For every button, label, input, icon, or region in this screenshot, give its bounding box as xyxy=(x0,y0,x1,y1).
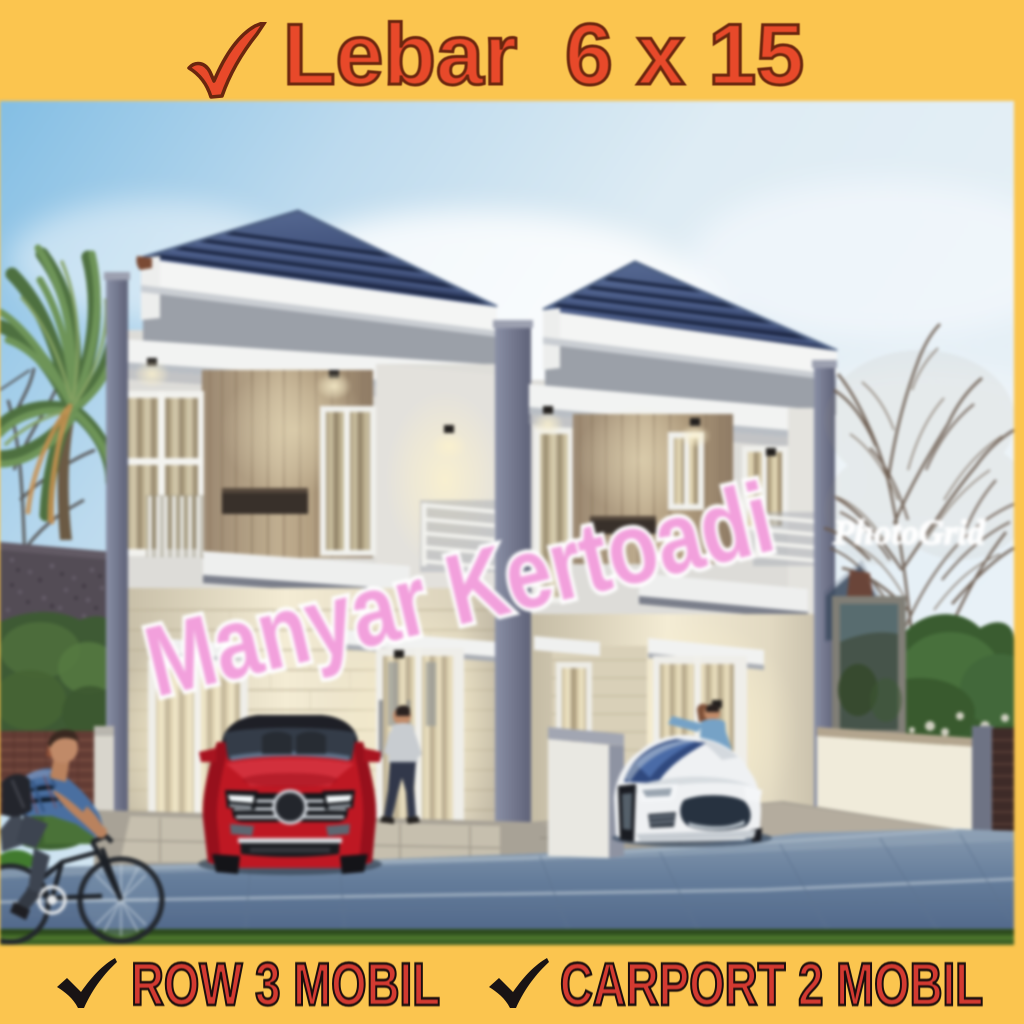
svg-text:PhotoGrid: PhotoGrid xyxy=(832,513,985,552)
